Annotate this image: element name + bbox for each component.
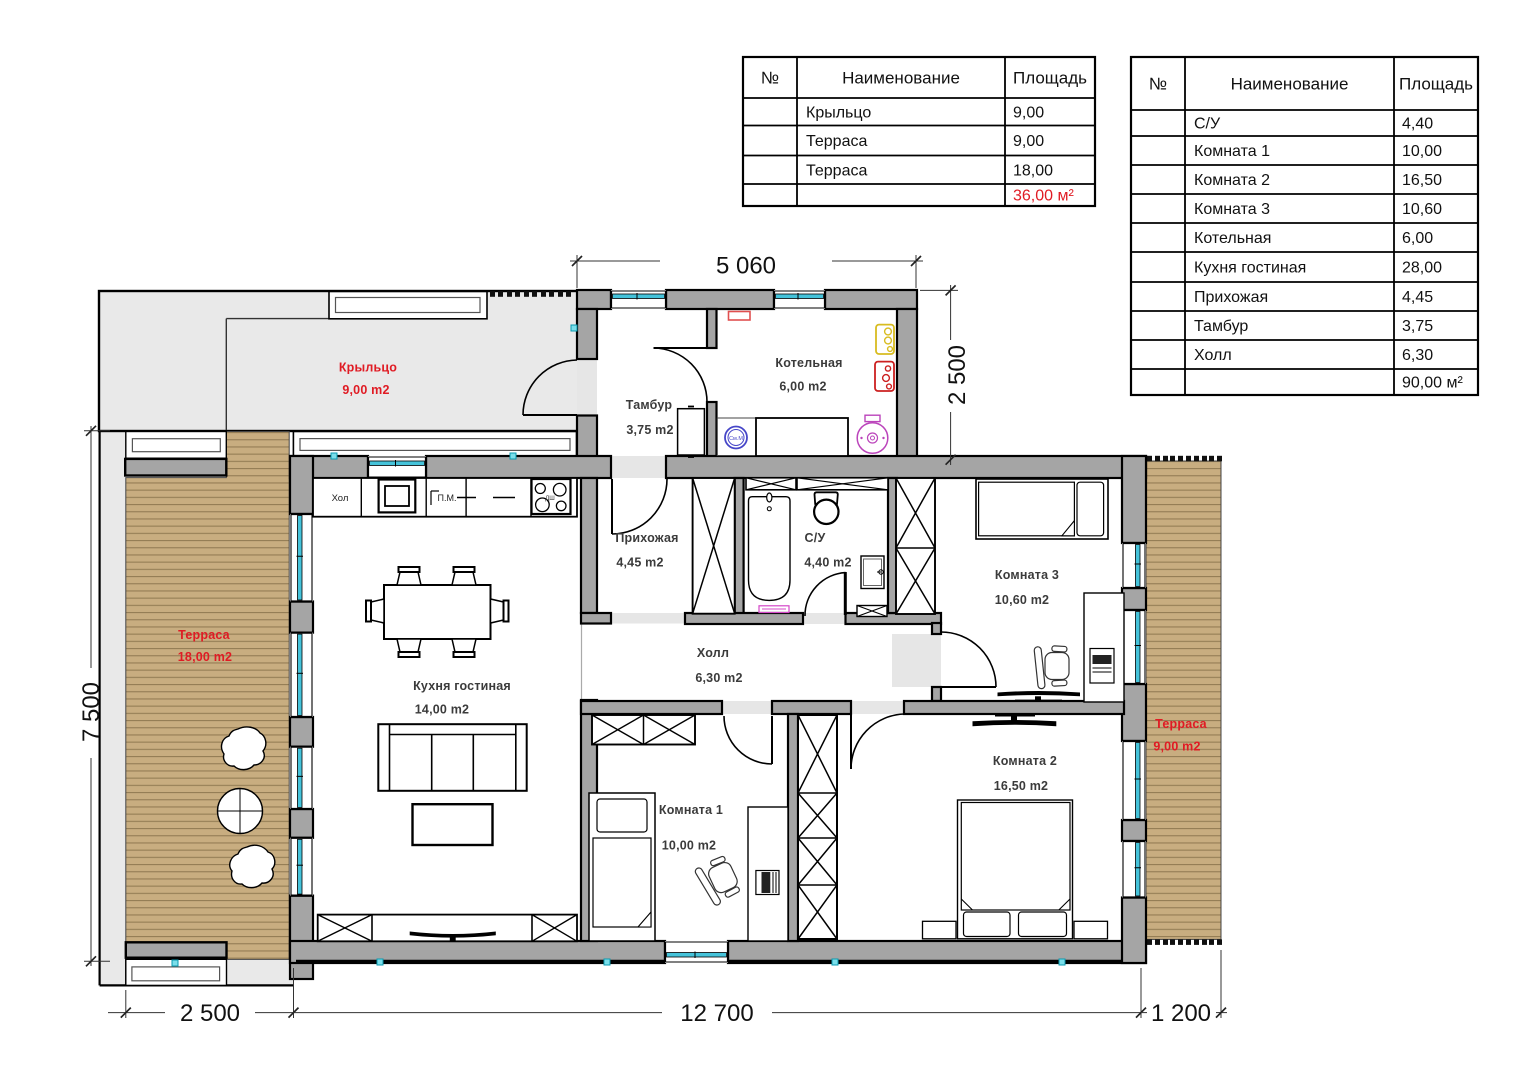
- svg-text:10,00: 10,00: [1402, 143, 1442, 160]
- svg-text:ДШ: ДШ: [545, 496, 555, 502]
- svg-text:6,30 m2: 6,30 m2: [695, 671, 742, 685]
- svg-text:9,00: 9,00: [1013, 133, 1044, 150]
- svg-text:Крыльцо: Крыльцо: [339, 361, 397, 375]
- svg-text:5 060: 5 060: [716, 253, 776, 280]
- svg-text:Прихожая: Прихожая: [1194, 289, 1268, 306]
- svg-text:С/У: С/У: [1194, 116, 1221, 133]
- svg-text:Тамбур: Тамбур: [1194, 318, 1248, 335]
- svg-text:16,50: 16,50: [1402, 172, 1442, 189]
- svg-text:18,00: 18,00: [1013, 162, 1053, 179]
- svg-text:№: №: [761, 69, 779, 88]
- svg-text:9,00 m2: 9,00 m2: [1153, 740, 1200, 754]
- svg-text:10,00 m2: 10,00 m2: [662, 839, 716, 853]
- svg-text:4,45: 4,45: [1402, 289, 1433, 306]
- svg-text:9,00 m2: 9,00 m2: [342, 383, 389, 397]
- svg-text:Крыльцо: Крыльцо: [806, 104, 871, 121]
- svg-text:18,00 m2: 18,00 m2: [178, 650, 232, 664]
- svg-text:4,45 m2: 4,45 m2: [616, 556, 663, 570]
- svg-text:4,40: 4,40: [1402, 116, 1433, 133]
- svg-text:Терраса: Терраса: [806, 162, 867, 179]
- svg-text:Кухня гостиная: Кухня гостиная: [1194, 260, 1306, 277]
- svg-text:Комната 2: Комната 2: [993, 754, 1057, 768]
- svg-text:1 200: 1 200: [1151, 1000, 1211, 1027]
- svg-text:Комната 3: Комната 3: [1194, 201, 1270, 218]
- svg-text:Наименование: Наименование: [1231, 75, 1349, 94]
- svg-text:3,75: 3,75: [1402, 318, 1433, 335]
- svg-text:Терраса: Терраса: [178, 628, 230, 642]
- svg-text:10,60 m2: 10,60 m2: [995, 593, 1049, 607]
- svg-text:Холл: Холл: [697, 646, 729, 660]
- svg-text:Хол: Хол: [332, 493, 349, 504]
- svg-text:Холл: Холл: [1194, 347, 1232, 364]
- svg-text:16,50 m2: 16,50 m2: [994, 779, 1048, 793]
- svg-text:6,00 m2: 6,00 m2: [779, 380, 826, 394]
- svg-text:2 500: 2 500: [180, 1000, 240, 1027]
- svg-text:2 500: 2 500: [944, 345, 971, 405]
- svg-text:4,40 m2: 4,40 m2: [804, 556, 851, 570]
- svg-text:14,00 m2: 14,00 m2: [415, 703, 469, 717]
- svg-text:Комната 2: Комната 2: [1194, 172, 1270, 189]
- svg-text:6,30: 6,30: [1402, 347, 1433, 364]
- svg-text:Наименование: Наименование: [842, 69, 960, 88]
- svg-text:28,00: 28,00: [1402, 260, 1442, 277]
- svg-text:7 500: 7 500: [78, 682, 105, 742]
- svg-text:С/У: С/У: [805, 531, 826, 545]
- svg-text:Терраса: Терраса: [1155, 717, 1207, 731]
- svg-text:Комната 1: Комната 1: [1194, 143, 1270, 160]
- svg-text:П.М.: П.М.: [438, 493, 457, 503]
- svg-text:№: №: [1149, 75, 1167, 94]
- svg-text:Тамбур: Тамбур: [626, 398, 673, 412]
- svg-text:12 700: 12 700: [680, 1000, 753, 1027]
- svg-text:Прихожая: Прихожая: [615, 531, 678, 545]
- svg-text:Кухня гостиная: Кухня гостиная: [413, 679, 511, 693]
- svg-text:3,75 m2: 3,75 m2: [626, 423, 673, 437]
- svg-text:Терраса: Терраса: [806, 133, 867, 150]
- svg-text:Котельная: Котельная: [775, 356, 842, 370]
- svg-text:Площадь: Площадь: [1399, 75, 1473, 94]
- svg-text:Площадь: Площадь: [1013, 69, 1087, 88]
- svg-text:90,00 м²: 90,00 м²: [1402, 375, 1463, 392]
- svg-text:Комната 3: Комната 3: [995, 568, 1059, 582]
- svg-text:См.М: См.М: [729, 436, 743, 442]
- svg-text:Комната 1: Комната 1: [659, 803, 723, 817]
- svg-text:Котельная: Котельная: [1194, 230, 1271, 247]
- svg-text:9,00: 9,00: [1013, 104, 1044, 121]
- svg-text:6,00: 6,00: [1402, 230, 1433, 247]
- svg-text:36,00 м²: 36,00 м²: [1013, 188, 1074, 205]
- svg-text:10,60: 10,60: [1402, 201, 1442, 218]
